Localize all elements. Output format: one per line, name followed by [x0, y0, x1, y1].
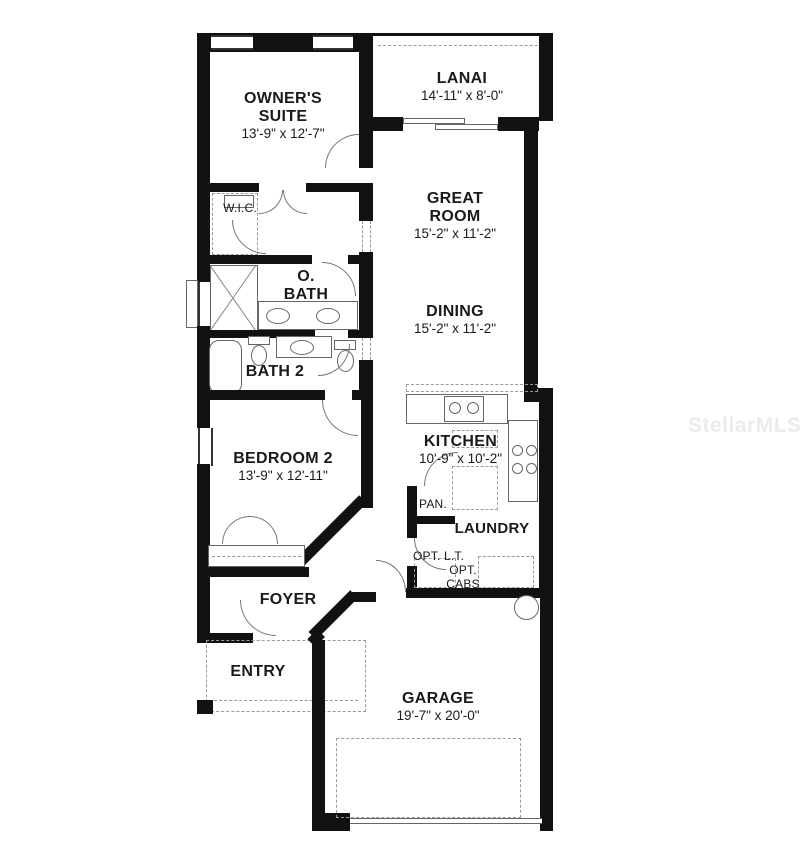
bedroom2-name: BEDROOM 2 — [198, 450, 368, 468]
owners-suite-dims: 13'-9" x 12'-7" — [203, 126, 363, 143]
entry-porch-post — [197, 700, 213, 714]
lanai-dims: 14'-11" x 8'-0" — [402, 88, 522, 105]
stellar-mls-watermark: StellarMLS — [688, 414, 800, 438]
vanity-sink-2 — [316, 308, 340, 324]
garage-dims: 19'-7" x 20'-0" — [378, 708, 498, 725]
wall-hall-vert-2 — [359, 252, 373, 338]
opt-cabs-text: OPT. CABS — [446, 563, 479, 591]
bedroom2-dims: 13'-9" x 12'-11" — [198, 468, 368, 485]
label-wic: W.I.C. — [213, 201, 267, 215]
closet-door-left-leaf — [222, 516, 250, 544]
garage-name: GARAGE — [378, 690, 498, 708]
closet-door-right-leaf — [250, 516, 278, 544]
closet-rod-dashed — [212, 556, 301, 557]
wall-right-garage — [540, 598, 553, 831]
garage-door-sill — [350, 818, 542, 824]
label-great-room: GREAT ROOM 15'-2" x 11'-2" — [385, 190, 525, 243]
window-box-shower — [186, 280, 198, 328]
lanai-name: LANAI — [402, 70, 522, 88]
foyer-name: FOYER — [252, 591, 324, 609]
vanity-sink-1 — [266, 308, 290, 324]
label-laundry: LAUNDRY — [437, 520, 547, 537]
label-pantry: PAN. — [414, 497, 452, 511]
wall-suite-bottom-left — [197, 183, 259, 192]
wall-bedroom2-top-left — [197, 390, 325, 400]
bath2-toilet-tank — [248, 336, 270, 345]
wall-laundry-left-upper — [407, 524, 417, 538]
wall-garage-left — [312, 640, 325, 831]
water-heater — [514, 595, 539, 620]
bath2-sink — [290, 340, 314, 355]
label-owners-suite: OWNER'S SUITE 13'-9" x 12'-7" — [203, 90, 363, 143]
door-arc-foyer — [376, 560, 406, 592]
wall-wic-bottom-nib — [348, 255, 373, 264]
wall-left-upper — [197, 52, 210, 282]
kitchen-sink-basin-1 — [449, 402, 461, 414]
owners-suite-name: OWNER'S SUITE — [231, 90, 336, 126]
sliding-door-panel-2 — [435, 124, 498, 130]
label-kitchen: KITCHEN 10'-9" x 10'-2" — [398, 433, 523, 468]
label-garage: GARAGE 19'-7" x 20'-0" — [378, 690, 498, 725]
lanai-screen-dashed-line — [378, 45, 548, 46]
wall-hall-vert-1 — [359, 183, 373, 221]
wall-right-kitchen-laundry — [539, 388, 553, 598]
laundry-name: LAUNDRY — [455, 520, 530, 537]
window-owners-suite-top-1 — [211, 35, 253, 50]
wall-lanai-bottom-right — [498, 117, 539, 131]
kitchen-name: KITCHEN — [398, 433, 523, 451]
label-opt-cabs: OPT. CABS — [441, 563, 485, 591]
label-bedroom2: BEDROOM 2 13'-9" x 12'-11" — [198, 450, 368, 485]
garage-door-dashed — [336, 738, 521, 818]
opening-dash-1b — [370, 221, 371, 252]
pantry-name: PAN. — [419, 497, 447, 511]
wall-bedroom2-right — [361, 390, 373, 508]
wall-lanai-top-line — [373, 33, 553, 36]
kitchen-upper-cabs-dashed — [406, 384, 538, 392]
wic-name: W.I.C. — [223, 201, 257, 215]
wall-wic-bottom — [197, 255, 312, 264]
opening-dash-2b — [370, 338, 371, 360]
opening-dash-2a — [362, 338, 363, 360]
great-room-name: GREAT ROOM — [413, 190, 498, 226]
label-o-bath: O. BATH — [268, 268, 344, 304]
opt-lt-text: OPT. L.T. — [413, 549, 464, 563]
label-bath2: BATH 2 — [235, 363, 315, 381]
label-entry: ENTRY — [222, 663, 294, 681]
kitchen-dims: 10'-9" x 10'-2" — [398, 451, 523, 468]
wall-closet-bottom — [203, 567, 309, 577]
opening-dash-1a — [362, 221, 363, 252]
wall-lanai-right — [539, 33, 553, 121]
great-room-dims: 15'-2" x 11'-2" — [385, 226, 525, 243]
kitchen-sink-basin-2 — [467, 402, 479, 414]
laundry-opt-cab-dashed-2 — [478, 556, 534, 588]
stove-burner-4 — [526, 463, 537, 474]
wall-right-greatroom — [524, 119, 538, 395]
label-lanai: LANAI 14'-11" x 8'-0" — [402, 70, 522, 105]
stove-burner-2 — [526, 445, 537, 456]
floorplan: OWNER'S SUITE 13'-9" x 12'-7" LANAI 14'-… — [0, 0, 800, 849]
entry-name: ENTRY — [222, 663, 294, 681]
bath2-name: BATH 2 — [235, 363, 315, 381]
dining-dims: 15'-2" x 11'-2" — [385, 321, 525, 338]
label-dining: DINING 15'-2" x 11'-2" — [385, 303, 525, 338]
door-arc-bedroom2 — [322, 400, 358, 436]
wall-bath-divider-nib — [348, 330, 373, 338]
kitchen-island-dashed-2 — [452, 466, 498, 510]
o-bath-name: O. BATH — [284, 268, 329, 304]
label-foyer: FOYER — [252, 591, 324, 609]
dining-name: DINING — [385, 303, 525, 321]
door-arc-hall-right-leaf — [283, 190, 307, 214]
label-opt-lt: OPT. L.T. — [413, 549, 473, 563]
wall-lanai-bottom-left — [373, 117, 403, 131]
window-owners-suite-top-2 — [313, 35, 353, 50]
entry-porch-dashed-inner — [214, 700, 358, 701]
